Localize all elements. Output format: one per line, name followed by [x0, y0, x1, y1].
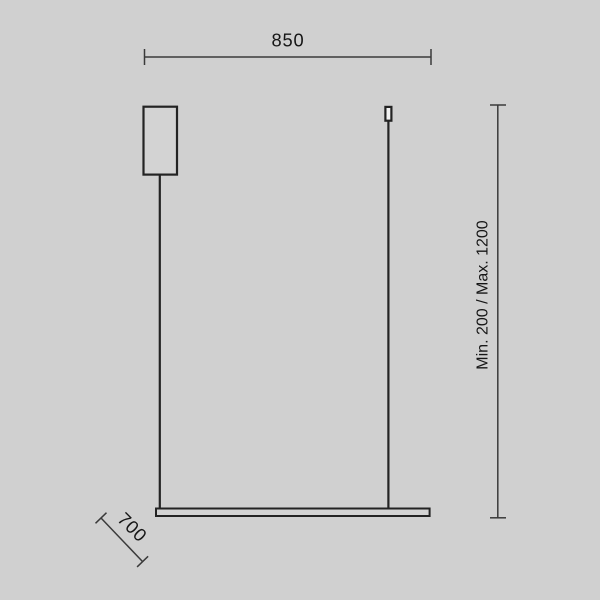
svg-text:850: 850 [272, 30, 305, 51]
svg-text:Min. 200 / Max. 1200: Min. 200 / Max. 1200 [475, 220, 492, 370]
svg-text:700: 700 [114, 508, 152, 546]
